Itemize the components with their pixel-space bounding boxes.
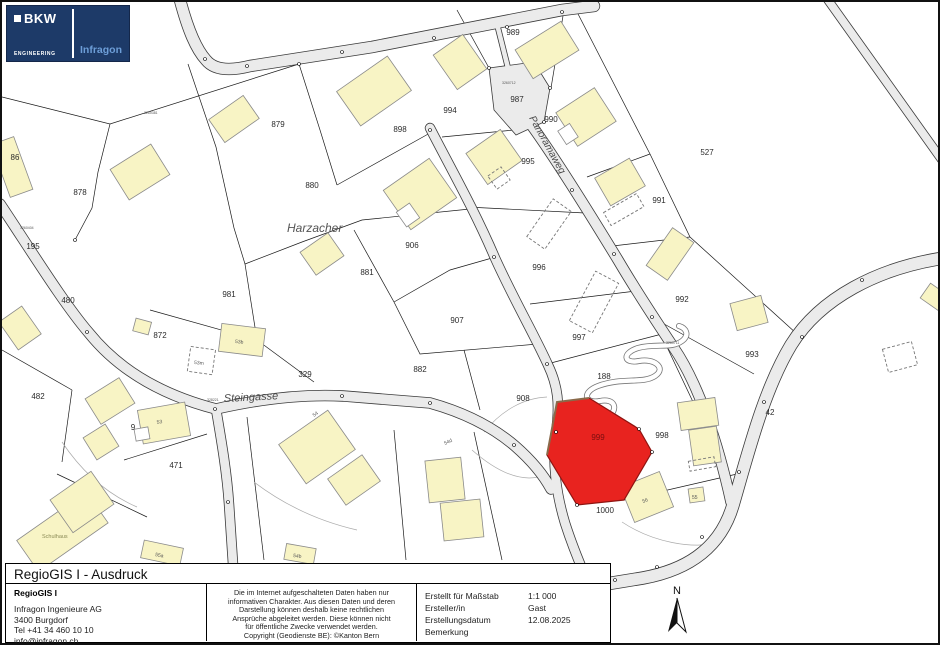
bkw-infragon-logo: BKW ENGINEERING Infragon (6, 5, 130, 62)
org-info-block: RegioGIS I Infragon Ingenieure AG3400 Bu… (6, 584, 206, 641)
meta-label: Ersteller/in (425, 602, 528, 614)
parcel-number-label: 882 (413, 365, 427, 374)
meta-value: Gast (528, 602, 610, 614)
bkw-square-icon (14, 15, 21, 22)
parcel-number-label: 329 (298, 370, 312, 379)
north-arrow-icon (668, 598, 677, 632)
building-number-label: 55 (692, 495, 698, 501)
org-name: RegioGIS I (14, 588, 198, 598)
meta-row: Erstellungsdatum12.08.2025 (425, 614, 610, 626)
north-arrow: N (668, 585, 686, 632)
building-number-label: 53m (194, 360, 204, 367)
meta-label: Erstellt für Maßstab (425, 590, 528, 602)
parcel-number-label: 993 (745, 350, 759, 359)
parcel-number-label: 880 (305, 181, 319, 190)
parcel-number-label: 881 (360, 268, 374, 277)
text-line: 3400 Burgdorf (14, 615, 198, 626)
meta-row: Erstellt für Maßstab1:1 000 (425, 590, 610, 602)
bkw-brand-text: BKW (24, 11, 57, 26)
parcel-number-label: 992 (675, 295, 689, 304)
bkw-brand: BKW (14, 11, 72, 26)
street-name-label: Harzacher (287, 221, 343, 235)
map-canvas: 999 868788798989949899879909959915278809… (2, 2, 940, 645)
roads-layer (2, 2, 940, 585)
parcel-number-label: 42 (766, 408, 775, 417)
bkw-logo-block: BKW ENGINEERING (7, 6, 72, 61)
bkw-engineering-text: ENGINEERING (14, 51, 72, 57)
buildings-layer (2, 21, 940, 571)
parcel-number-label: 188 (597, 372, 611, 381)
parcel-number-label: 906 (405, 241, 419, 250)
survey-point-label: 3260712 (502, 81, 516, 85)
infragon-brand-text: Infragon (74, 6, 129, 61)
building-number-label: 54d (443, 438, 453, 447)
meta-value (528, 626, 610, 638)
footer-panel: RegioGIS I - Ausdruck RegioGIS I Infrago… (5, 563, 611, 643)
north-arrow-icon (677, 598, 686, 632)
meta-label: Bemerkung (425, 626, 528, 638)
parcel-number-label: 872 (153, 331, 167, 340)
parcel-number-label: 989 (506, 28, 520, 37)
parcel-number-label: 482 (31, 392, 45, 401)
meta-row: Bemerkung (425, 626, 610, 638)
parcel-number-label: 898 (393, 125, 407, 134)
parcel-number-label: 1000 (596, 506, 614, 515)
parcel-number-label: 471 (169, 461, 183, 470)
parcel-number-label: 981 (222, 290, 236, 299)
parcel-number-label: 908 (516, 394, 530, 403)
parcel-number-label: 86 (11, 153, 20, 162)
print-meta-block: Erstellt für Maßstab1:1 000Ersteller/inG… (417, 584, 610, 641)
highlight-parcel-label: 999 (591, 433, 605, 442)
parcel-number-label: 996 (532, 263, 546, 272)
meta-value: 1:1 000 (528, 590, 610, 602)
text-line: Copyright (Geodienste BE): ©Kanton Bern (207, 632, 416, 641)
meta-row: Ersteller/inGast (425, 602, 610, 614)
parcel-number-label: 998 (655, 431, 669, 440)
parcel-number-label: 987 (510, 95, 524, 104)
parcel-number-label: 195 (26, 242, 40, 251)
parcel-number-label: 991 (652, 196, 666, 205)
disclaimer-block: Die im Internet aufgeschalteten Daten ha… (206, 584, 417, 641)
footer-body: RegioGIS I Infragon Ingenieure AG3400 Bu… (6, 584, 610, 641)
parcel-number-label: 997 (572, 333, 586, 342)
building-number-label: Schulhaus (42, 534, 68, 540)
parcel-number-label: 907 (450, 316, 464, 325)
survey-points-layer (74, 11, 864, 582)
parcel-number-label: 480 (61, 296, 75, 305)
parcel-number-label: 527 (700, 148, 714, 157)
text-line: Tel +41 34 460 10 10 (14, 625, 198, 636)
parcel-number-label: 994 (443, 106, 457, 115)
survey-point-label: 3260381 (144, 111, 158, 115)
parcel-number-label: 878 (73, 188, 87, 197)
parcel-number-label: 9 (131, 423, 136, 432)
building-number-label: 53b (235, 339, 244, 346)
survey-point-label: 3260404 (20, 226, 34, 230)
parcel-number-label: 995 (521, 157, 535, 166)
meta-value: 12.08.2025 (528, 614, 610, 626)
text-line: info@infragon.ch (14, 636, 198, 645)
print-page: 999 868788798989949899879909959915278809… (0, 0, 940, 645)
print-title: RegioGIS I - Ausdruck (6, 564, 610, 584)
north-label: N (673, 585, 681, 597)
survey-point-label: 3260711 (666, 341, 679, 345)
building-number-label: 54b (293, 553, 302, 560)
org-address-lines: Infragon Ingenieure AG3400 BurgdorfTel +… (14, 604, 198, 645)
parcel-number-label: 879 (271, 120, 285, 129)
survey-point-label: 328221 (207, 398, 219, 402)
parcel-number-label: 990 (544, 115, 558, 124)
text-line: Infragon Ingenieure AG (14, 604, 198, 615)
meta-label: Erstellungsdatum (425, 614, 528, 626)
